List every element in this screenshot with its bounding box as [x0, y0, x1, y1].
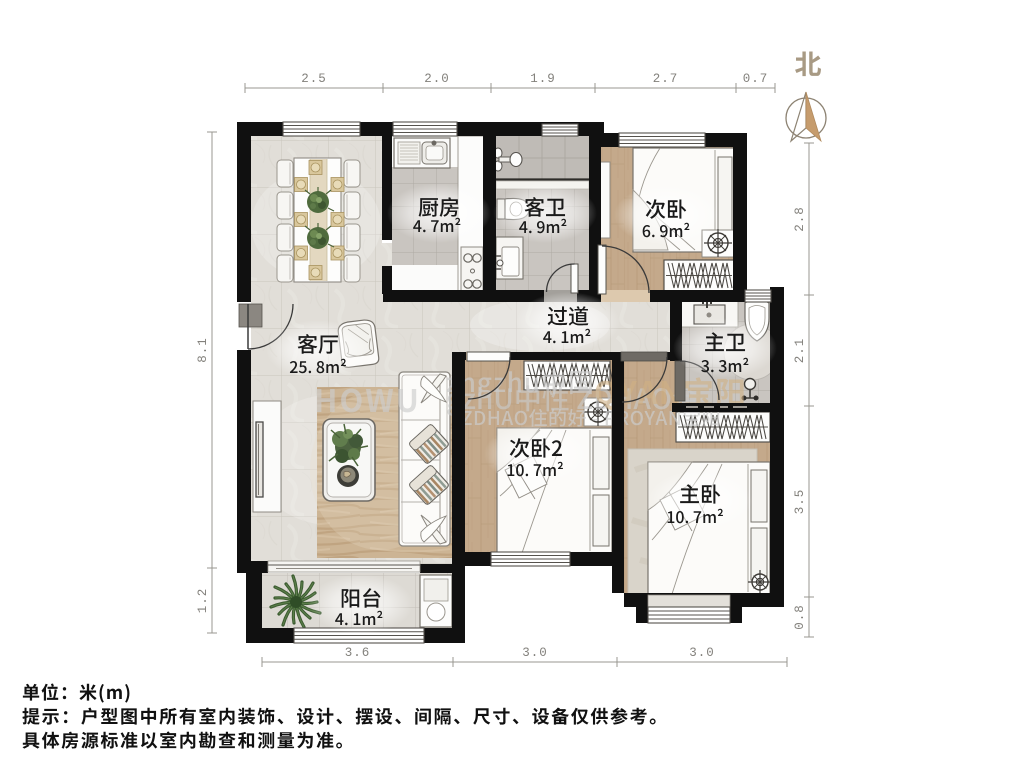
svg-text:2.1: 2.1 [793, 338, 807, 364]
svg-text:2.5: 2.5 [301, 72, 327, 86]
svg-text:0.8: 0.8 [793, 604, 807, 630]
svg-text:3.0: 3.0 [689, 646, 715, 660]
svg-text:3.5: 3.5 [793, 489, 807, 515]
svg-text:0.7: 0.7 [743, 72, 769, 86]
svg-text:1.2: 1.2 [196, 588, 210, 614]
svg-text:3.6: 3.6 [345, 646, 371, 660]
svg-text:2.8: 2.8 [793, 206, 807, 232]
svg-text:2.0: 2.0 [424, 72, 450, 86]
svg-text:1.9: 1.9 [530, 72, 556, 86]
svg-text:3.0: 3.0 [522, 646, 548, 660]
svg-text:2.7: 2.7 [653, 72, 679, 86]
svg-text:8.1: 8.1 [196, 337, 210, 363]
